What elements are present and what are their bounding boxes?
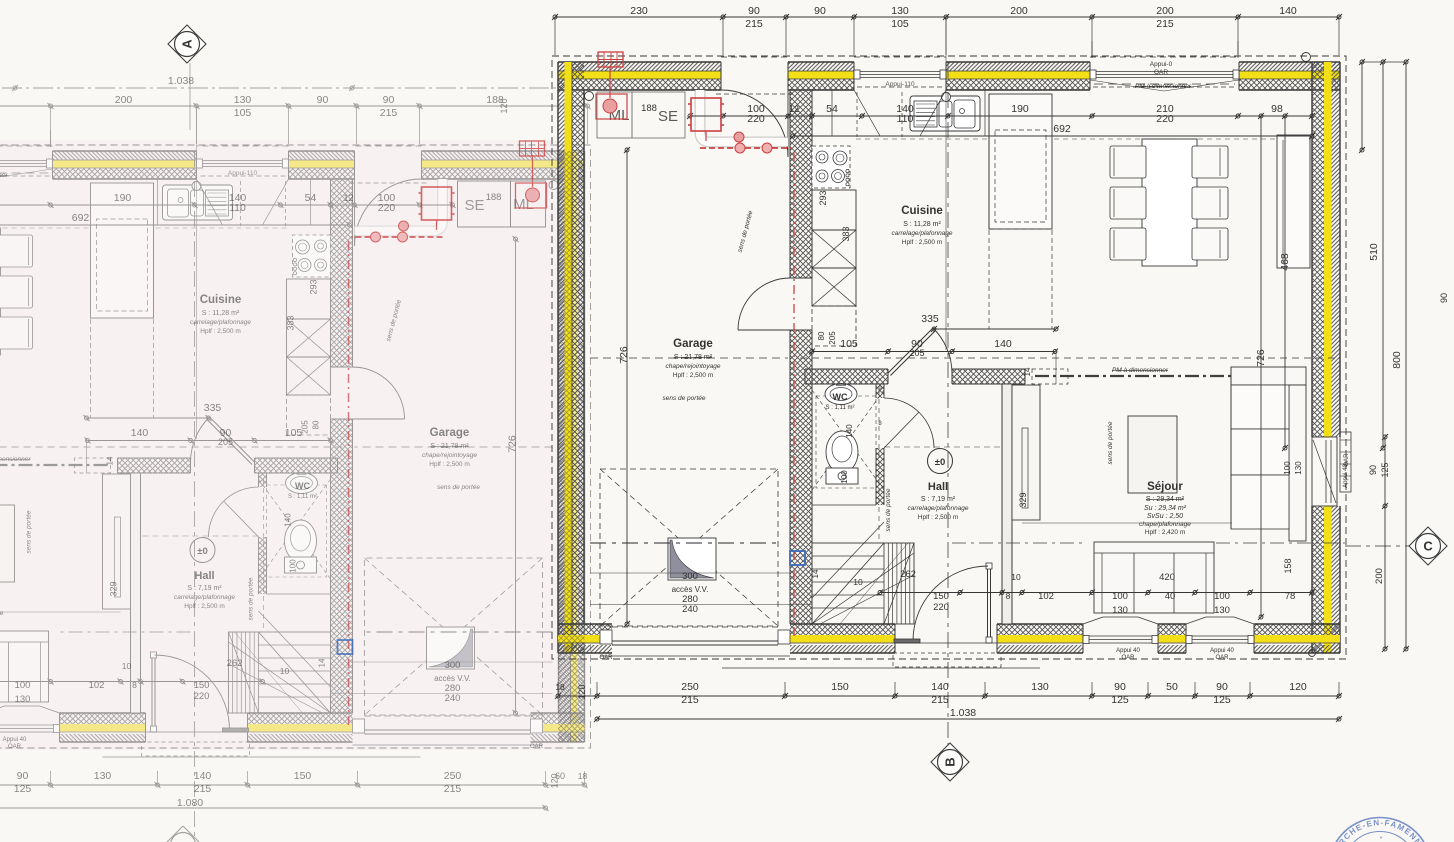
svg-text:190: 190 — [1011, 103, 1029, 115]
svg-text:205: 205 — [301, 420, 310, 434]
svg-text:726: 726 — [618, 346, 630, 364]
svg-text:125: 125 — [1111, 694, 1129, 706]
svg-text:sens de portée: sens de portée — [1107, 421, 1114, 464]
svg-text:90: 90 — [317, 94, 329, 106]
svg-text:8: 8 — [132, 680, 137, 690]
svg-text:Hplf : 2,500 m: Hplf : 2,500 m — [184, 603, 224, 610]
svg-text:510: 510 — [1368, 243, 1380, 261]
svg-text:383: 383 — [841, 226, 851, 241]
svg-text:130: 130 — [1294, 461, 1303, 475]
svg-text:60: 60 — [555, 771, 565, 781]
svg-text:accès V.V.: accès V.V. — [434, 674, 471, 683]
svg-text:140: 140 — [194, 770, 212, 782]
svg-text:120: 120 — [1289, 681, 1307, 693]
svg-text:Garage: Garage — [673, 338, 713, 350]
svg-text:Hplf : 2,500 m: Hplf : 2,500 m — [918, 514, 958, 521]
svg-text:150: 150 — [294, 770, 312, 782]
svg-text:250: 250 — [444, 770, 462, 782]
svg-text:Séjour: Séjour — [1147, 481, 1183, 493]
svg-text:sens de portée: sens de portée — [437, 484, 480, 491]
svg-text:125: 125 — [14, 783, 32, 795]
svg-text:240: 240 — [682, 604, 698, 615]
svg-text:220: 220 — [747, 113, 765, 125]
svg-text:Appui 40: Appui 40 — [3, 737, 27, 743]
svg-text:100: 100 — [1112, 591, 1128, 602]
svg-text:S : 7,19 m²: S : 7,19 m² — [187, 585, 222, 592]
svg-text:Su : 29,34 m²: Su : 29,34 m² — [1144, 505, 1187, 512]
svg-text:±0: ±0 — [197, 546, 208, 557]
svg-text:90: 90 — [748, 5, 760, 17]
svg-text:130: 130 — [234, 94, 252, 106]
svg-text:S : 21,78 m²: S : 21,78 m² — [674, 354, 713, 361]
svg-text:130: 130 — [94, 770, 112, 782]
svg-text:*: * — [1380, 836, 1383, 842]
svg-text:150: 150 — [831, 681, 849, 693]
svg-text:800: 800 — [1391, 351, 1403, 369]
svg-text:50: 50 — [1166, 681, 1178, 693]
svg-text:14: 14 — [1023, 367, 1032, 376]
svg-text:90: 90 — [17, 770, 29, 782]
svg-text:OAR: OAR — [1121, 655, 1135, 661]
svg-text:S : 1,11 m²: S : 1,11 m² — [826, 405, 855, 411]
svg-text:10: 10 — [122, 661, 132, 671]
svg-text:215: 215 — [931, 694, 949, 706]
svg-text:726: 726 — [1255, 349, 1267, 367]
svg-text:102: 102 — [89, 680, 105, 691]
svg-text:12: 12 — [343, 193, 353, 203]
svg-text:OAR: OAR — [599, 655, 613, 661]
svg-text:OAR: OAR — [530, 744, 544, 750]
svg-text:100: 100 — [289, 559, 298, 573]
svg-text:335: 335 — [921, 313, 939, 325]
svg-text:S : 21,78 m²: S : 21,78 m² — [430, 443, 469, 450]
svg-text:140: 140 — [931, 681, 949, 693]
svg-text:293: 293 — [818, 190, 828, 205]
svg-text:carrelage/plafonnage: carrelage/plafonnage — [891, 230, 952, 237]
svg-text:sens de portée: sens de portée — [885, 488, 892, 531]
svg-text:PM à dimensionner: PM à dimensionner — [1135, 83, 1192, 90]
svg-text:130: 130 — [15, 694, 31, 705]
svg-text:293: 293 — [309, 279, 319, 294]
svg-text:OAR: OAR — [1154, 69, 1168, 76]
svg-text:80: 80 — [817, 331, 826, 340]
svg-text:chape/plafonnage: chape/plafonnage — [1139, 521, 1191, 528]
svg-text:100: 100 — [840, 470, 849, 484]
svg-text:105: 105 — [891, 18, 909, 30]
svg-text:140: 140 — [284, 513, 293, 527]
svg-text:S : 7,19 m²: S : 7,19 m² — [921, 496, 956, 503]
svg-text:SE: SE — [464, 197, 484, 214]
svg-text:329: 329 — [109, 581, 119, 596]
svg-text:14: 14 — [811, 569, 820, 578]
svg-text:100: 100 — [1283, 461, 1292, 475]
svg-text:90: 90 — [1368, 465, 1378, 475]
svg-text:80: 80 — [312, 420, 321, 429]
svg-text:692: 692 — [1053, 123, 1071, 135]
svg-text:C: C — [1423, 539, 1433, 554]
svg-text:220: 220 — [933, 602, 949, 613]
svg-text:383: 383 — [286, 315, 296, 330]
svg-text:Hplf : 2,500 m: Hplf : 2,500 m — [673, 372, 713, 379]
svg-text:205: 205 — [828, 331, 837, 345]
svg-text:140: 140 — [994, 338, 1012, 350]
svg-text:Hplf : 2,500 m: Hplf : 2,500 m — [200, 328, 240, 335]
svg-text:Appui 40: Appui 40 — [1343, 463, 1349, 487]
svg-text:Garage: Garage — [430, 427, 470, 439]
svg-text:1.080: 1.080 — [177, 797, 203, 809]
svg-text:OAR: OAR — [1215, 655, 1229, 661]
svg-text:726: 726 — [507, 435, 519, 453]
svg-text:215: 215 — [194, 783, 212, 795]
svg-text:130: 130 — [1214, 605, 1230, 616]
svg-text:Appui-110: Appui-110 — [228, 170, 258, 177]
svg-text:200: 200 — [115, 94, 133, 106]
svg-text:10: 10 — [1011, 572, 1021, 582]
svg-text:±0: ±0 — [935, 457, 946, 468]
svg-text:carrelage/plafonnage: carrelage/plafonnage — [907, 505, 968, 512]
svg-text:262: 262 — [900, 569, 916, 580]
svg-text:130: 130 — [1112, 605, 1128, 616]
svg-text:300: 300 — [682, 571, 698, 582]
svg-text:accès V.V.: accès V.V. — [672, 585, 709, 594]
svg-text:Appui-0: Appui-0 — [1150, 61, 1173, 68]
svg-text:Hplf : 2,500 m: Hplf : 2,500 m — [902, 239, 942, 246]
svg-text:692: 692 — [72, 212, 90, 224]
svg-text:215: 215 — [380, 107, 398, 119]
svg-text:188: 188 — [486, 192, 502, 203]
svg-text:188: 188 — [486, 94, 504, 106]
svg-text:sens de portée: sens de portée — [248, 577, 255, 620]
svg-text:carrelage/plafonnage: carrelage/plafonnage — [174, 594, 235, 601]
svg-text:130: 130 — [1031, 681, 1049, 693]
svg-text:230: 230 — [630, 5, 648, 17]
svg-text:188: 188 — [641, 103, 657, 114]
svg-text:215: 215 — [1156, 18, 1174, 30]
svg-text:Hall: Hall — [194, 570, 214, 582]
svg-text:150: 150 — [933, 591, 949, 602]
svg-text:140: 140 — [845, 424, 854, 438]
svg-text:335: 335 — [204, 402, 222, 414]
svg-text:SvSu : 2,50: SvSu : 2,50 — [1147, 513, 1183, 520]
svg-text:chape/rejointoyage: chape/rejointoyage — [422, 452, 477, 459]
svg-text:Appui 40: Appui 40 — [1116, 648, 1140, 654]
svg-text:205: 205 — [909, 348, 924, 358]
svg-text:100: 100 — [15, 680, 31, 691]
svg-text:262: 262 — [227, 658, 243, 669]
svg-text:carrelage/plafonnage: carrelage/plafonnage — [190, 319, 251, 326]
svg-text:220: 220 — [1156, 113, 1174, 125]
svg-text:14: 14 — [106, 456, 115, 465]
svg-text:150: 150 — [194, 680, 210, 691]
svg-text:215: 215 — [681, 694, 699, 706]
svg-text:S : 11,28 m²: S : 11,28 m² — [202, 310, 240, 317]
svg-text:PM à dimensionner: PM à dimensionner — [1112, 367, 1169, 374]
svg-text:90: 90 — [383, 94, 395, 106]
svg-text:Cuisine: Cuisine — [200, 294, 242, 306]
svg-text:Appui 40: Appui 40 — [1210, 648, 1234, 654]
svg-text:Hall: Hall — [928, 481, 948, 493]
svg-text:130: 130 — [891, 5, 909, 17]
svg-text:90: 90 — [1114, 681, 1126, 693]
svg-text:B: B — [943, 757, 958, 766]
svg-text:190: 190 — [114, 192, 132, 204]
svg-text:OAR: OAR — [8, 744, 22, 750]
svg-text:Appui-110: Appui-110 — [885, 81, 915, 88]
svg-text:12: 12 — [789, 104, 799, 114]
svg-text:10: 10 — [853, 577, 863, 587]
svg-text:329: 329 — [1018, 492, 1028, 507]
svg-text:240: 240 — [445, 693, 461, 704]
svg-text:10: 10 — [280, 666, 290, 676]
svg-text:sens de portée: sens de portée — [662, 395, 705, 402]
svg-text:220: 220 — [194, 691, 210, 702]
svg-text:110: 110 — [229, 202, 246, 214]
svg-text:140: 140 — [131, 427, 149, 439]
svg-text:Hplf : 2,500 m: Hplf : 2,500 m — [429, 461, 469, 468]
svg-text:A: A — [180, 39, 195, 49]
svg-text:158: 158 — [1283, 558, 1293, 573]
svg-text:sens de portée: sens de portée — [26, 510, 33, 553]
svg-text:PM à dimensionner: PM à dimensionner — [0, 456, 31, 463]
svg-text:140: 140 — [1279, 5, 1297, 17]
svg-text:102: 102 — [1038, 591, 1054, 602]
svg-text:S : 1,11 m²: S : 1,11 m² — [288, 494, 317, 500]
svg-text:468: 468 — [1279, 253, 1291, 271]
svg-text:250: 250 — [681, 681, 699, 693]
svg-text:220: 220 — [378, 202, 396, 214]
svg-text:105: 105 — [234, 107, 252, 119]
svg-text:90: 90 — [814, 5, 826, 17]
svg-text:Hplf : 2,420 m: Hplf : 2,420 m — [1145, 529, 1185, 536]
svg-text:90: 90 — [1439, 293, 1449, 303]
svg-text:215: 215 — [745, 18, 763, 30]
svg-text:200: 200 — [1156, 5, 1174, 17]
svg-text:125: 125 — [1213, 694, 1231, 706]
svg-text:78: 78 — [1285, 591, 1296, 602]
svg-text:1.038: 1.038 — [950, 707, 976, 719]
svg-text:200: 200 — [1374, 568, 1385, 584]
svg-text:14: 14 — [318, 658, 327, 667]
svg-text:Cuisine: Cuisine — [901, 205, 943, 217]
svg-text:90: 90 — [1216, 681, 1228, 693]
svg-text:110: 110 — [897, 113, 914, 125]
svg-text:205: 205 — [218, 437, 233, 447]
svg-text:8: 8 — [1006, 591, 1011, 601]
svg-text:WC: WC — [833, 392, 848, 402]
svg-text:300: 300 — [445, 660, 461, 671]
svg-text:chape/plafonnage: chape/plafonnage — [0, 610, 4, 617]
svg-text:215: 215 — [444, 783, 462, 795]
svg-text:18: 18 — [578, 771, 588, 781]
svg-text:WC: WC — [295, 481, 310, 491]
svg-text:SE: SE — [658, 108, 678, 125]
svg-text:420: 420 — [1159, 572, 1175, 583]
svg-text:PM à dimensionner: PM à dimensionner — [0, 172, 8, 179]
svg-text:S : 11,28 m²: S : 11,28 m² — [903, 221, 941, 228]
svg-text:100: 100 — [1214, 591, 1230, 602]
svg-text:200: 200 — [1010, 5, 1028, 17]
svg-text:chape/rejointoyage: chape/rejointoyage — [666, 363, 721, 370]
svg-text:54: 54 — [826, 103, 838, 115]
svg-text:40: 40 — [1165, 591, 1176, 602]
svg-text:105: 105 — [840, 338, 858, 350]
svg-text:54: 54 — [305, 192, 317, 204]
svg-text:S : 29,34 m²: S : 29,34 m² — [1146, 496, 1185, 503]
svg-text:98: 98 — [1271, 103, 1283, 115]
